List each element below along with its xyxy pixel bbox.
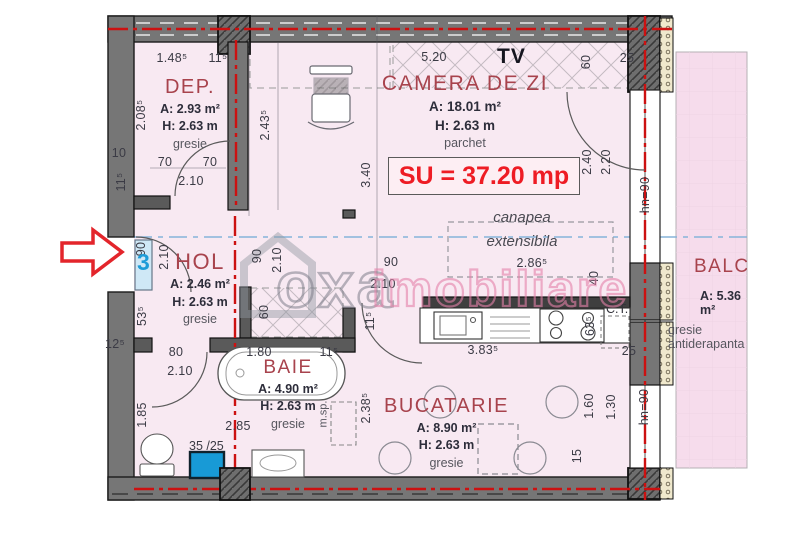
room-dep: DEP. A: 2.93 m² H: 2.63 m gresie	[140, 76, 240, 151]
dimension-label: 15	[570, 449, 584, 464]
sofa-note: canapea extensibila	[458, 206, 586, 254]
room-balcon-floor: gresie antiderapanta	[668, 323, 747, 351]
dimension-label: 5.20	[421, 50, 447, 64]
dimension-label: 25	[622, 344, 637, 358]
dimension-label: hn=90	[637, 389, 651, 426]
dimension-label: 2.40	[580, 149, 594, 175]
dimension-label: 11⁵	[114, 172, 128, 191]
dimension-label: 2.38⁵	[359, 392, 373, 423]
room-camera-area: A: 18.01 m²	[375, 99, 555, 115]
dimension-label: 25	[620, 51, 635, 65]
dimension-label: 2.10	[167, 364, 193, 378]
dimension-label: 3.83⁵	[467, 343, 498, 357]
su-total-box: SU = 37.20 mp	[388, 157, 580, 195]
dimension-label: 2.10	[178, 174, 204, 188]
chimney-block	[220, 468, 250, 500]
room-balcon: BALCON A: 5.36 m² gresie antiderapanta	[658, 248, 747, 358]
dimension-label: 3.40	[359, 162, 373, 188]
room-camera: CAMERA DE ZI A: 18.01 m² H: 2.63 m parch…	[375, 72, 555, 151]
watermark-word2: imobiliare	[372, 260, 628, 318]
room-bucatarie-name: BUCATARIE	[384, 395, 509, 418]
dimension-label: hn=90	[638, 177, 652, 214]
dimension-label: 63⁵	[583, 316, 597, 336]
dimension-label: 60	[257, 305, 271, 320]
dimension-label: 70	[158, 155, 173, 169]
room-camera-height: H: 2.63 m	[375, 118, 555, 134]
room-hol-name: HOL	[150, 249, 250, 274]
dimension-label: 90	[250, 249, 264, 264]
room-dep-area: A: 2.93 m²	[140, 102, 240, 116]
room-bucatarie: BUCATARIE A: 8.90 m² H: 2.63 m gresie	[384, 395, 509, 470]
dimension-label: 2.20	[599, 149, 613, 175]
shaft-blue	[190, 452, 224, 478]
dimension-label: 1.60	[582, 393, 596, 419]
sofa-note-line1: canapea	[458, 206, 586, 230]
room-bucatarie-area: A: 8.90 m²	[384, 421, 509, 435]
room-camera-floor: parchet	[375, 136, 555, 150]
dimension-label: 60	[579, 55, 593, 70]
apartment-door-number: 3	[137, 249, 150, 276]
room-camera-name: CAMERA DE ZI	[375, 72, 555, 96]
dimension-label: 10	[112, 146, 127, 160]
room-hol-height: H: 2.63 m	[150, 295, 250, 309]
dimension-label: 2.43⁵	[258, 109, 272, 140]
room-bucatarie-floor: gresie	[384, 456, 509, 470]
dimension-label: 12⁵	[105, 337, 125, 351]
room-hol: HOL A: 2.46 m² H: 2.63 m gresie	[150, 249, 250, 326]
room-hol-area: A: 2.46 m²	[150, 277, 250, 291]
dimension-label: 1.85	[135, 402, 149, 428]
room-dep-name: DEP.	[140, 76, 240, 99]
washing-machine-label: m.sp.	[317, 401, 329, 428]
dimension-label: 53⁵	[135, 306, 149, 326]
bath-sink	[252, 450, 304, 477]
dimension-label: 70	[203, 155, 218, 169]
tv-label: TV	[497, 45, 526, 69]
room-baie-name: BAIE	[238, 357, 338, 379]
room-bucatarie-height: H: 2.63 m	[384, 438, 509, 452]
room-dep-floor: gresie	[140, 137, 240, 151]
floorplan-page: 1.48⁵11⁵2.08⁵1070702.1011⁵2.43⁵3.405.206…	[0, 0, 800, 543]
dimension-label: 11⁵	[208, 51, 227, 65]
dimension-label: 1.48⁵	[156, 51, 187, 65]
room-dep-height: H: 2.63 m	[140, 119, 240, 133]
room-baie-area: A: 4.90 m²	[238, 382, 338, 396]
dimension-label: 1.30	[604, 394, 618, 420]
shaft-label: 35 /25	[189, 439, 224, 453]
sofa-note-line2: extensibila	[458, 230, 586, 254]
room-balcon-name: BALCON	[694, 256, 747, 278]
dimension-label: 80	[169, 345, 184, 359]
room-balcon-area: A: 5.36 m²	[700, 289, 747, 317]
toilet	[140, 434, 174, 476]
room-hol-floor: gresie	[150, 312, 250, 326]
